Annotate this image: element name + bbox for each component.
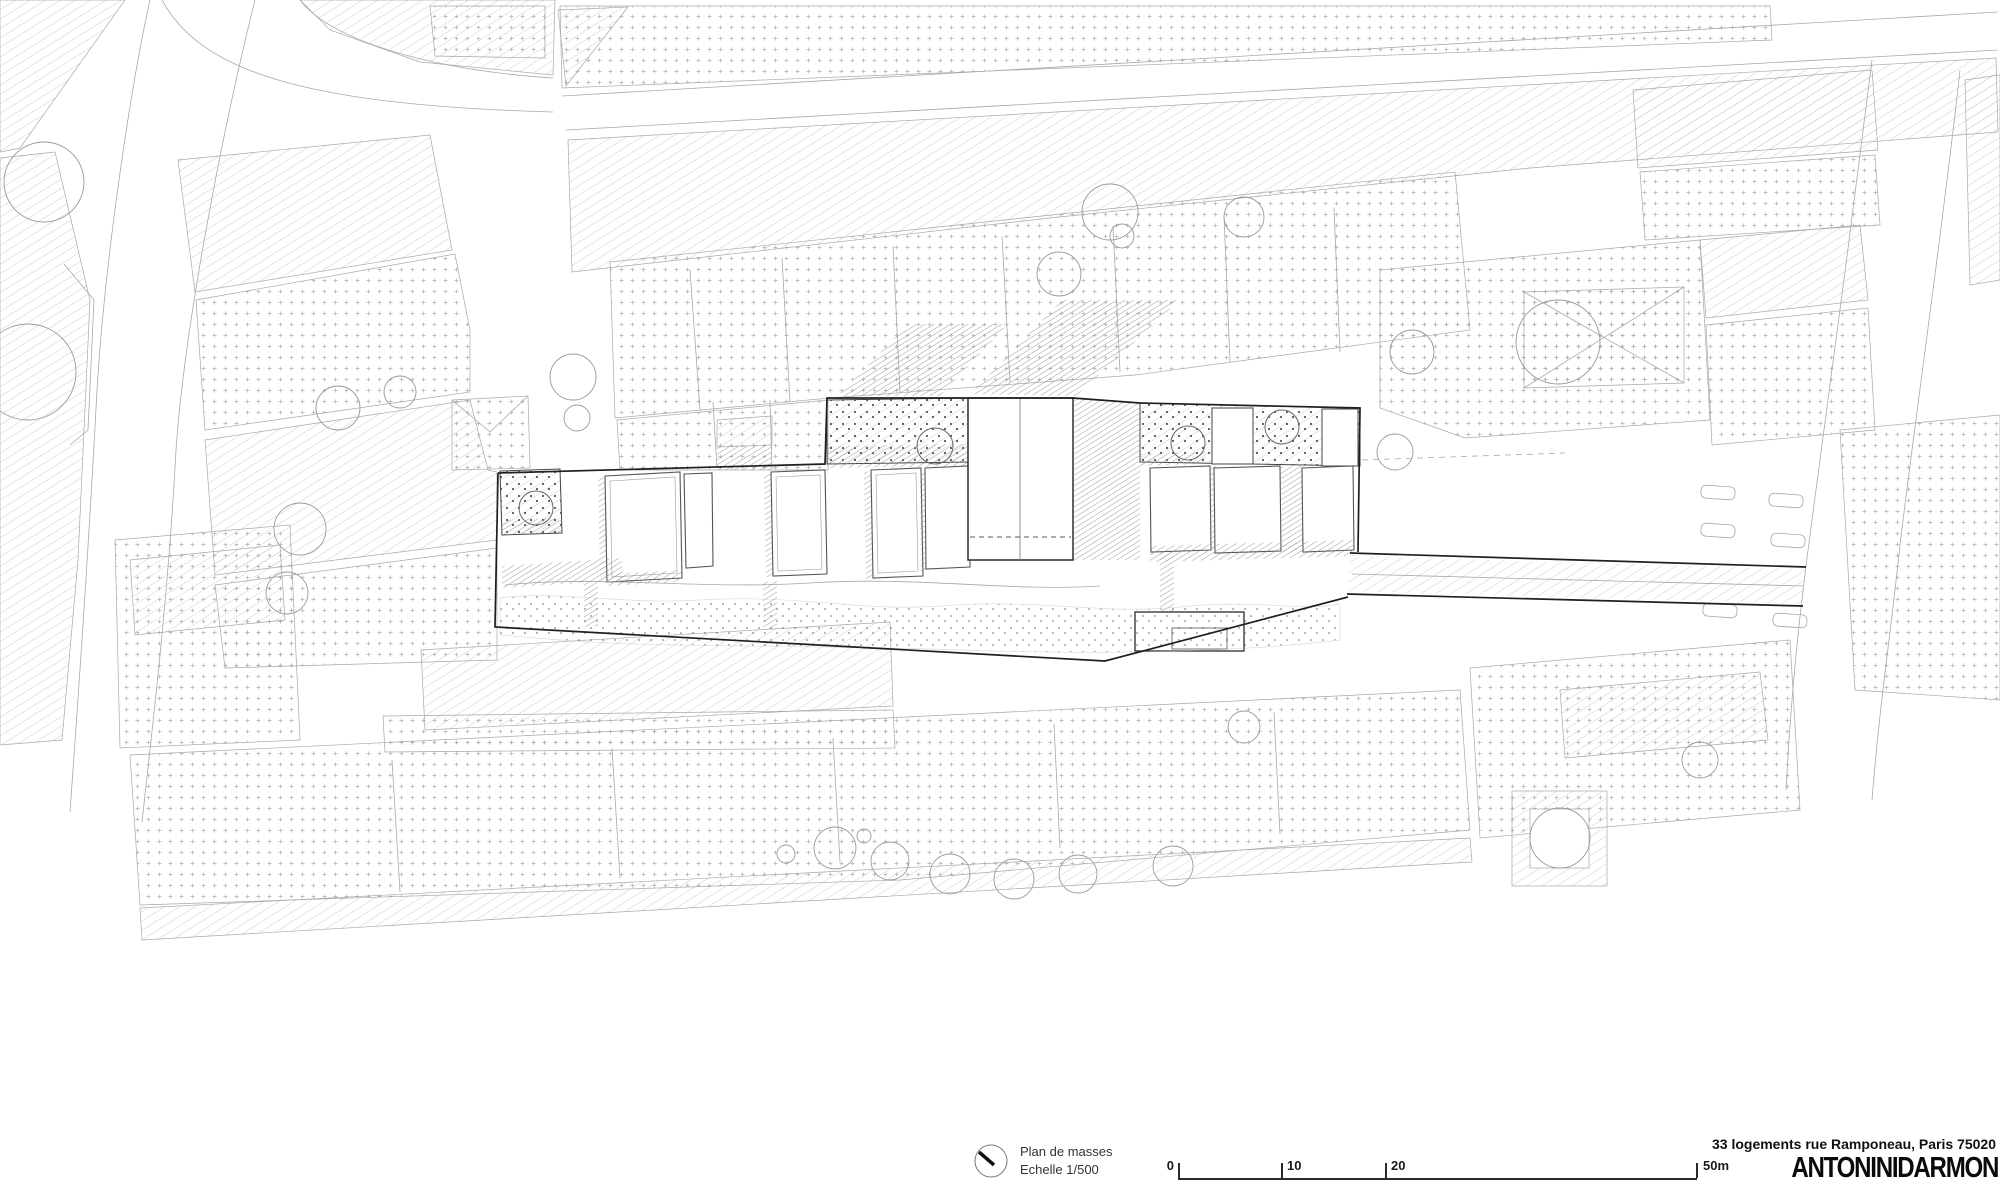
north-arrow-icon — [972, 1142, 1012, 1182]
scale-bar — [1178, 1178, 1697, 1180]
scale-bar-tick — [1696, 1163, 1698, 1178]
firm-logo: ANTONINIDARMON — [1791, 1152, 1998, 1185]
parked-cars — [1701, 485, 1808, 628]
title-block: Plan de masses Echelle 1/500 0 10 20 50m… — [0, 1130, 2000, 1185]
scale-bar-tick — [1178, 1163, 1180, 1178]
scale-bar-tick — [1281, 1163, 1283, 1178]
site-plan-drawing — [0, 0, 2000, 1130]
scale-bar-label-10: 10 — [1287, 1158, 1301, 1173]
scale-bar-label-20: 20 — [1391, 1158, 1405, 1173]
site-plan-sheet: Plan de masses Echelle 1/500 0 10 20 50m… — [0, 0, 2000, 1185]
scale-label: Echelle 1/500 — [1020, 1162, 1099, 1177]
project-title: 33 logements rue Ramponeau, Paris 75020 — [1712, 1136, 1996, 1152]
scale-bar-tick — [1385, 1163, 1387, 1178]
scale-bar-label-50m: 50m — [1703, 1158, 1729, 1173]
drawing-title: Plan de masses — [1020, 1144, 1113, 1159]
scale-bar-label-0: 0 — [1130, 1158, 1174, 1173]
